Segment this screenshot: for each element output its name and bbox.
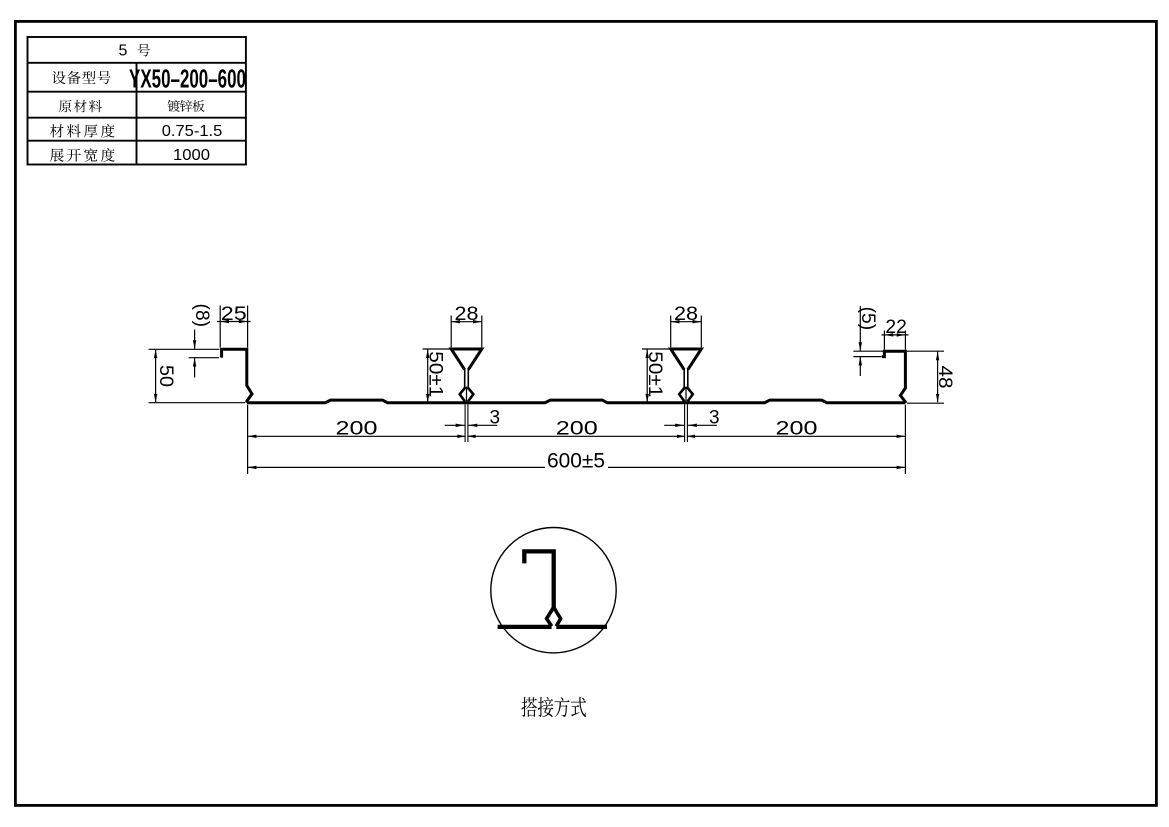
svg-text:28: 28 xyxy=(674,304,698,325)
svg-text:200: 200 xyxy=(776,418,818,439)
svg-text:5: 5 xyxy=(119,43,128,60)
svg-text:25: 25 xyxy=(221,304,247,325)
svg-text:1000: 1000 xyxy=(173,147,210,164)
svg-text:50: 50 xyxy=(155,365,176,387)
svg-text:3: 3 xyxy=(490,408,501,429)
svg-text:600±5: 600±5 xyxy=(547,450,605,473)
svg-text:YX50–200–600: YX50–200–600 xyxy=(129,63,246,93)
svg-text:50±1: 50±1 xyxy=(644,351,665,397)
svg-text:3: 3 xyxy=(709,408,720,429)
svg-text:200: 200 xyxy=(336,418,378,439)
svg-text:50±1: 50±1 xyxy=(424,351,445,397)
svg-text:22: 22 xyxy=(885,317,907,338)
svg-text:(8): (8) xyxy=(191,304,212,328)
svg-text:0.75-1.5: 0.75-1.5 xyxy=(162,123,223,140)
svg-text:200: 200 xyxy=(556,418,598,439)
svg-text:48: 48 xyxy=(934,366,955,389)
svg-text:28: 28 xyxy=(455,304,479,325)
